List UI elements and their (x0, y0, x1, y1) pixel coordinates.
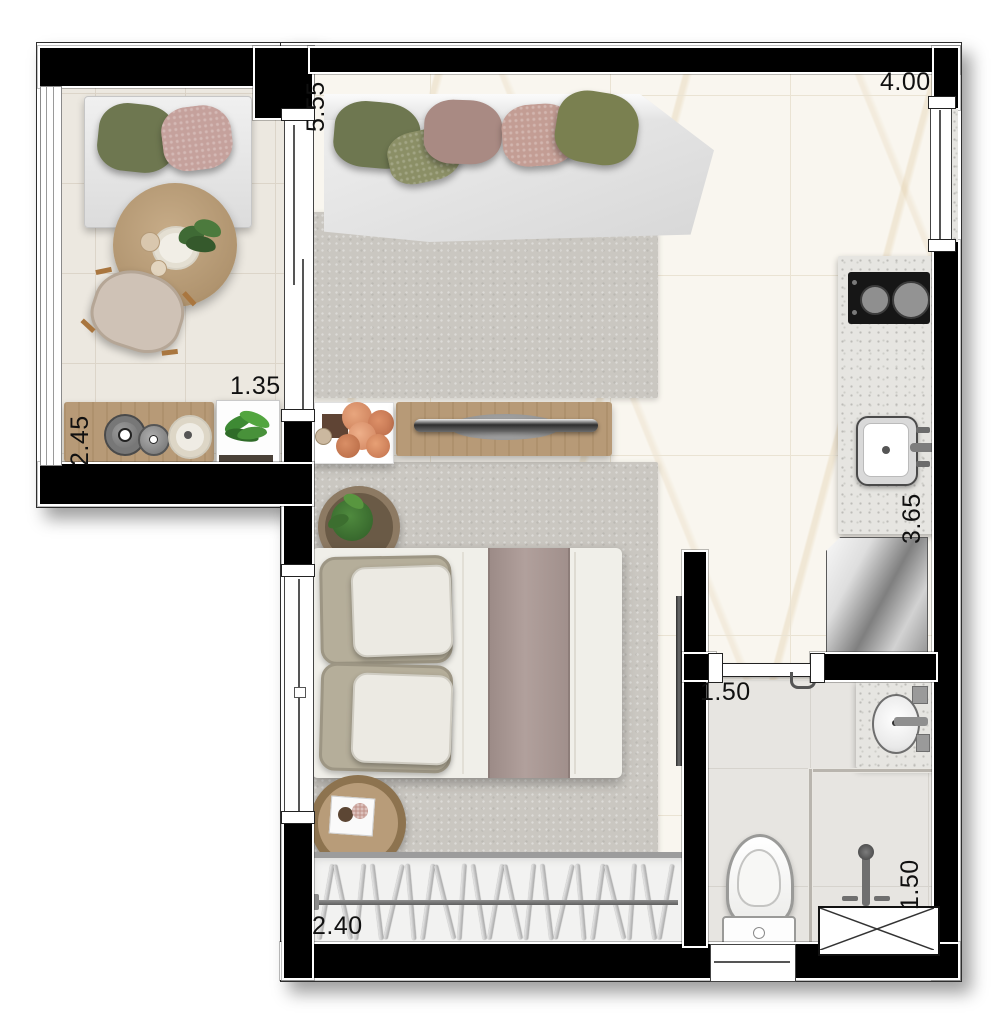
shower-handle-right (874, 896, 890, 901)
burner-large (892, 281, 930, 319)
bed-pillow-white-2 (350, 672, 453, 765)
partition-tv (676, 596, 682, 766)
wall-bath-partition (684, 552, 706, 946)
jamb-right-window-bottom (928, 239, 956, 252)
bed-pillow-white-1 (350, 564, 453, 657)
kitchen-faucet-handle-bottom (916, 461, 930, 467)
fridge (826, 537, 928, 653)
table-deco-ball (140, 232, 160, 252)
jamb-bed-window-bottom (281, 811, 315, 824)
table-plant (176, 218, 222, 258)
shower-head (858, 844, 874, 860)
dim-shower-width: 1.50 (896, 846, 925, 910)
tv-flat (414, 419, 598, 432)
burner-small (860, 285, 890, 315)
console-roses (336, 400, 398, 462)
toilet-bowl (726, 834, 794, 926)
jamb-slider-bottom (281, 409, 315, 422)
kitchen-faucet (910, 443, 936, 452)
bath-accessory-top (912, 686, 928, 704)
wall-balcony-bottom (40, 464, 312, 504)
cooktop (848, 272, 930, 324)
bath-faucet (894, 717, 928, 726)
bedroom-window (284, 574, 314, 818)
entry-window-behind-toilet (710, 944, 796, 982)
balcony-sliding-door (284, 118, 314, 416)
dim-kitchen-run: 3.65 (898, 480, 927, 544)
shower-box-marker (818, 906, 940, 956)
dim-closet-width: 2.40 (312, 912, 363, 941)
dim-living-length: 5.55 (302, 70, 331, 132)
wall-top-living (310, 48, 958, 72)
shower-glass-horizontal (808, 768, 936, 773)
balcony-glazing-left (40, 86, 62, 466)
counter-vase-small (138, 424, 170, 456)
bath-accessory-bottom (916, 734, 930, 752)
dim-balcony-length: 2.45 (66, 402, 95, 466)
wall-right-main (934, 242, 958, 978)
console-cup (315, 428, 332, 445)
kitchen-faucet-handle-top (916, 427, 930, 433)
shower-handle-left (842, 896, 858, 901)
balcony-planter-box (216, 400, 280, 466)
shower-glass-vertical (808, 768, 813, 946)
wall-left-mid-lower (284, 816, 312, 978)
jamb-right-window-top (928, 96, 956, 109)
jamb-bath-door-right (810, 653, 825, 683)
dim-balcony-width: 1.35 (230, 372, 281, 401)
wall-bath-top-right (812, 654, 936, 680)
dim-bath-width: 1.50 (700, 678, 751, 707)
floor-plan: 5.55 4.00 1.35 2.45 3.65 1.50 1.50 2.40 (0, 0, 1000, 1031)
dim-living-width: 4.00 (880, 68, 931, 97)
jamb-bed-window-top (281, 564, 315, 577)
counter-plate (168, 415, 212, 459)
sofa-pillow-mauve (423, 99, 503, 166)
kitchen-sink (856, 416, 918, 486)
living-right-window (930, 106, 952, 246)
